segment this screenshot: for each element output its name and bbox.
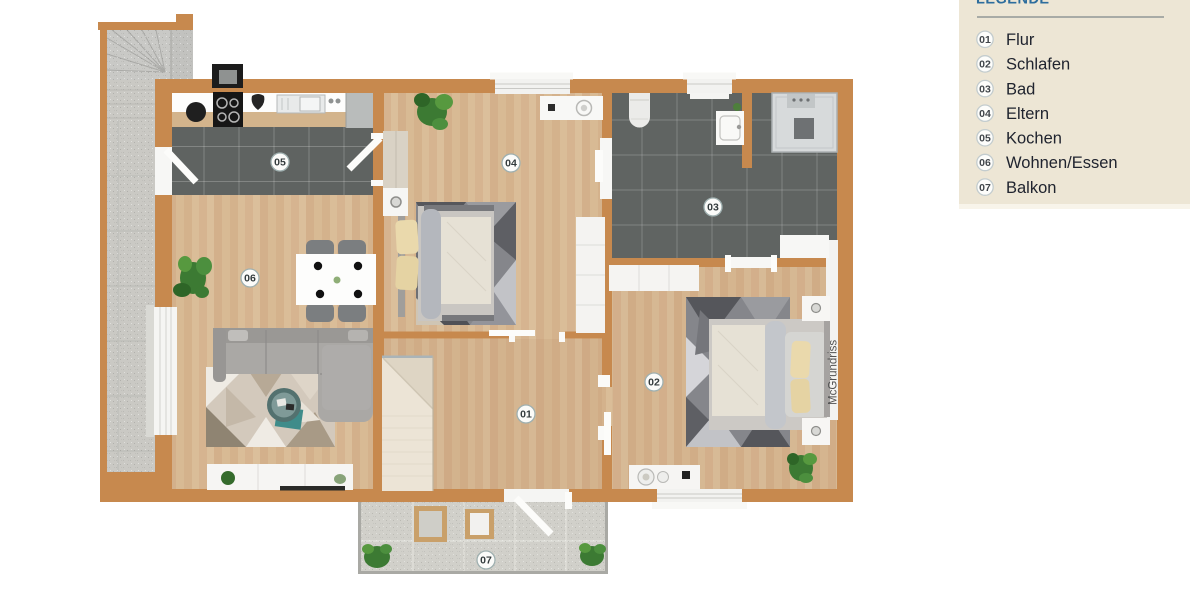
svg-text:02: 02: [979, 59, 991, 71]
svg-text:Balkon: Balkon: [1006, 179, 1056, 197]
svg-text:Flur: Flur: [1006, 31, 1035, 49]
svg-text:LEGENDE: LEGENDE: [976, 0, 1050, 8]
svg-text:McGrundriss: McGrundriss: [828, 340, 840, 405]
svg-text:03: 03: [707, 202, 719, 214]
svg-text:07: 07: [480, 555, 492, 567]
svg-text:06: 06: [979, 157, 991, 169]
svg-text:Schlafen: Schlafen: [1006, 56, 1070, 74]
svg-text:07: 07: [979, 182, 991, 194]
svg-text:Eltern: Eltern: [1006, 105, 1049, 123]
svg-text:Wohnen/Essen: Wohnen/Essen: [1006, 154, 1118, 172]
svg-text:01: 01: [979, 34, 991, 46]
svg-text:04: 04: [979, 108, 991, 120]
svg-text:Kochen: Kochen: [1006, 130, 1062, 148]
svg-text:05: 05: [979, 133, 991, 145]
svg-text:03: 03: [979, 83, 991, 95]
svg-text:02: 02: [648, 377, 660, 389]
svg-text:Bad: Bad: [1006, 80, 1035, 98]
svg-text:06: 06: [244, 273, 256, 285]
svg-text:01: 01: [520, 409, 532, 421]
svg-text:04: 04: [505, 158, 517, 170]
svg-text:05: 05: [274, 157, 286, 169]
